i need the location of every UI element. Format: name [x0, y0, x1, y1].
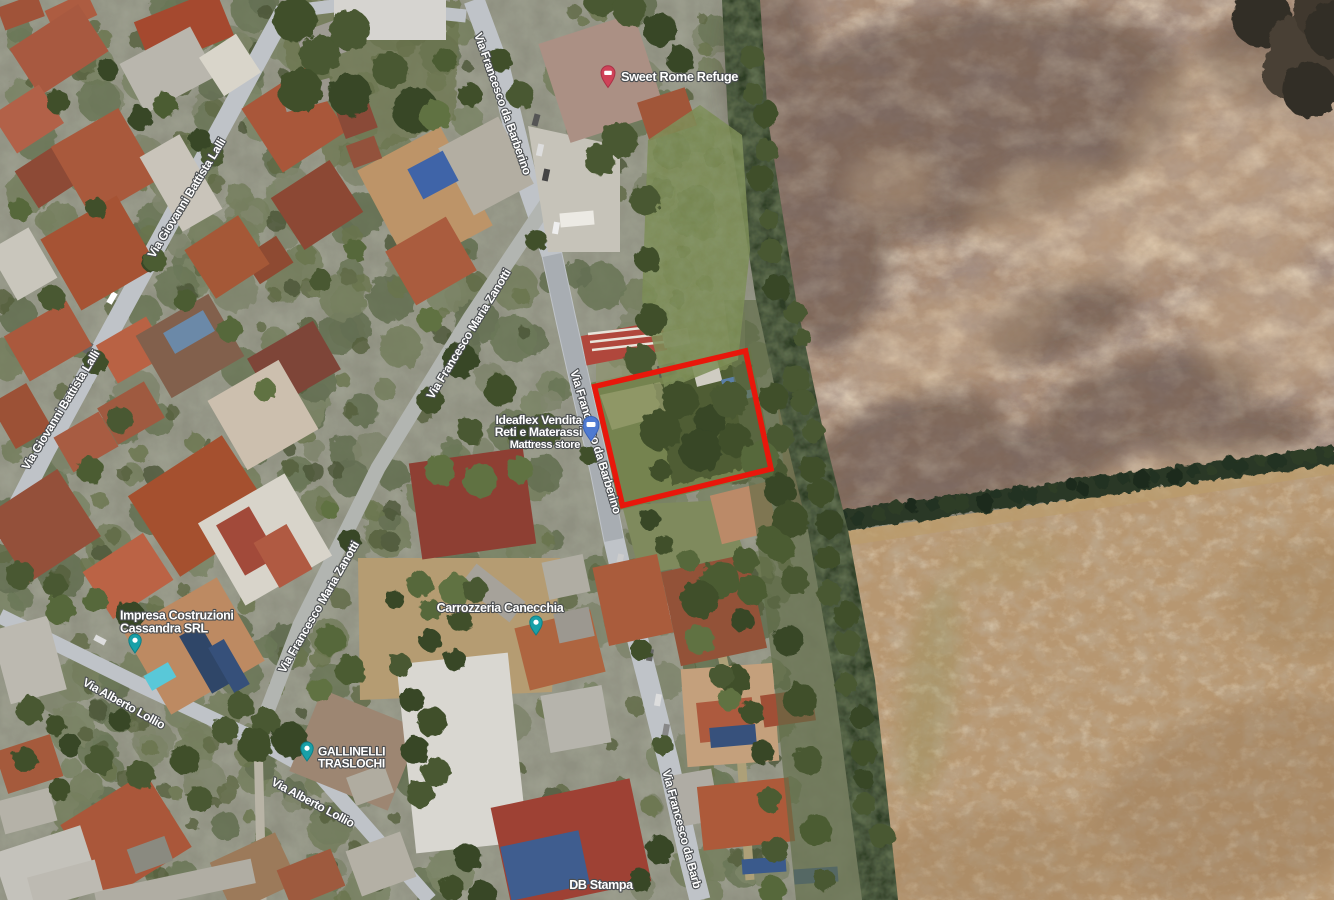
svg-text:TRASLOCHI: TRASLOCHI [318, 757, 385, 771]
svg-text:DB Stampa: DB Stampa [569, 878, 634, 892]
svg-text:Sweet Rome Refuge: Sweet Rome Refuge [621, 69, 738, 84]
svg-text:Mattress store: Mattress store [510, 439, 581, 451]
svg-text:Carrozzeria Canecchia: Carrozzeria Canecchia [437, 601, 565, 615]
svg-text:Impresa Costruzioni: Impresa Costruzioni [120, 609, 234, 623]
svg-text:Cassandra SRL: Cassandra SRL [120, 622, 209, 636]
svg-text:Reti e Materassi: Reti e Materassi [495, 425, 582, 439]
